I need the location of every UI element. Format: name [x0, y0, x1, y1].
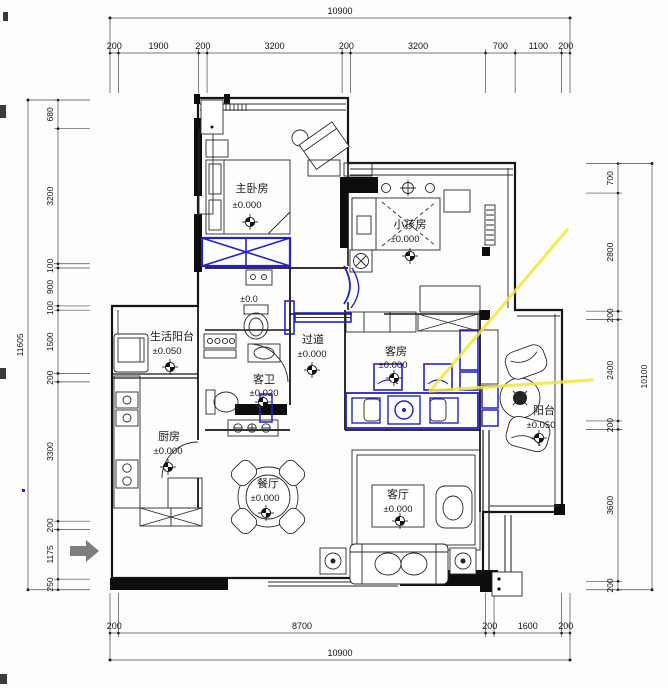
washing-machine	[114, 334, 148, 372]
floor-plan-canvas: 2001900200320020032007001100200109002008…	[0, 0, 668, 688]
dim-label: 8700	[292, 621, 312, 631]
dim-label: 1500	[45, 332, 55, 351]
room-label-hallway: 过道 ±0.000	[298, 332, 327, 378]
dim-label: 2400	[605, 361, 615, 380]
balcony-cabinet-highlight	[482, 386, 498, 426]
dim-label: 100	[45, 301, 55, 315]
dim-element	[57, 372, 60, 375]
dim-label: 200	[107, 621, 122, 631]
dim-element	[117, 52, 120, 55]
dim-element	[349, 52, 352, 55]
blue-dot-artifact	[22, 489, 25, 492]
dim-label: 11605	[15, 333, 25, 356]
dim-element	[560, 52, 563, 55]
level-marker-icon	[386, 370, 402, 386]
dim-label: 3200	[265, 41, 285, 51]
room-label-master-bath: ±0.0	[240, 294, 257, 304]
master-wardrobe-highlight	[202, 238, 290, 266]
dim-element	[57, 309, 60, 312]
dim-element	[493, 632, 496, 635]
dim-element	[197, 52, 200, 55]
floor-plan-svg: 2001900200320020032007001100200109002008…	[0, 0, 668, 688]
dim-label: 200	[195, 41, 210, 51]
svg-text:±0.000: ±0.000	[391, 234, 420, 245]
dim-element	[617, 310, 620, 313]
svg-text:±0.000: ±0.000	[384, 504, 413, 515]
dim-label: 680	[45, 107, 55, 121]
level-marker-icon	[304, 362, 320, 378]
level-marker-icon	[162, 359, 178, 375]
dim-label: 1600	[518, 621, 538, 631]
dim-element	[617, 420, 620, 423]
dim-label: 1175	[45, 545, 55, 564]
level-marker-icon	[242, 214, 258, 230]
dim-label: 200	[558, 41, 573, 51]
dim-label: 200	[45, 370, 55, 384]
dim-element	[617, 580, 620, 583]
dim-label: 200	[45, 518, 55, 532]
dim-element	[206, 52, 209, 55]
svg-text:过道: 过道	[302, 332, 324, 346]
entry-door-master	[201, 100, 223, 134]
dim-label: 10900	[327, 648, 352, 658]
dim-element	[57, 381, 60, 384]
dim-label: 200	[482, 621, 497, 631]
dim-element	[117, 632, 120, 635]
dim-element	[560, 632, 563, 635]
dim-element	[341, 52, 344, 55]
dim-label: 1100	[529, 41, 548, 51]
room-label-living-balcony: 生活阳台 ±0.050	[150, 329, 194, 375]
dim-label: 3200	[45, 186, 55, 205]
dim-element	[57, 520, 60, 523]
ac-unit	[492, 572, 522, 596]
dim-element	[617, 428, 620, 431]
dim-label: 200	[339, 41, 354, 51]
dim-label: 200	[605, 308, 615, 322]
svg-text:±0.000: ±0.000	[233, 200, 262, 211]
laundry-sink	[204, 334, 236, 358]
svg-text:±0.000: ±0.000	[154, 446, 183, 457]
dim-element	[617, 318, 620, 321]
dim-element	[514, 52, 517, 55]
svg-text:主卧房: 主卧房	[236, 182, 269, 195]
dim-element	[57, 262, 60, 265]
dim-element	[484, 52, 487, 55]
entry-arrow-icon	[70, 540, 99, 562]
dim-label: 700	[605, 171, 615, 185]
room-label-guest-room: 客房 ±0.000	[379, 344, 408, 386]
dim-element	[57, 267, 60, 270]
dim-label: 3200	[408, 41, 428, 51]
dim-label: 200	[107, 41, 122, 51]
svg-text:±0.0: ±0.0	[240, 294, 257, 304]
dim-label: 10900	[327, 6, 352, 16]
master-bath-fixtures	[244, 270, 272, 339]
master-desk-chair	[292, 122, 349, 170]
dim-label: 700	[493, 41, 508, 51]
dim-label: 3300	[45, 442, 55, 461]
svg-text:±0.000: ±0.000	[251, 493, 280, 504]
blue-highlights	[22, 238, 498, 492]
svg-text:客厅: 客厅	[387, 487, 409, 501]
svg-text:±0.000: ±0.000	[379, 360, 408, 371]
svg-text:小孩房: 小孩房	[394, 218, 427, 231]
svg-text:阳台: 阳台	[533, 403, 555, 417]
dim-element	[57, 305, 60, 308]
dim-label: 200	[558, 621, 573, 631]
room-label-kitchen: 厨房 ±0.000	[154, 430, 183, 475]
room-label-kids-room: 小孩房 ±0.000	[391, 218, 427, 264]
dim-label: 2800	[605, 242, 615, 261]
dim-element	[57, 528, 60, 531]
svg-text:±0.050: ±0.050	[527, 420, 556, 431]
room-label-master-bedroom: 主卧房 ±0.000	[233, 182, 269, 230]
dim-element	[57, 127, 60, 130]
dim-element	[617, 192, 620, 195]
dim-label: 200	[605, 418, 615, 432]
dim-element	[484, 632, 487, 635]
svg-text:±0.000: ±0.000	[298, 349, 327, 360]
svg-text:餐厅: 餐厅	[257, 476, 279, 490]
dim-label: 10100	[639, 365, 649, 389]
dim-label: 900	[45, 280, 55, 294]
dim-label: 100	[45, 258, 55, 272]
svg-text:±0.050: ±0.050	[153, 346, 182, 357]
dim-label: 200	[605, 578, 615, 592]
dim-label: 3600	[605, 496, 615, 515]
svg-text:生活阳台: 生活阳台	[150, 329, 194, 343]
dim-label: 1900	[149, 41, 169, 51]
svg-text:厨房: 厨房	[158, 430, 180, 443]
scan-artifacts	[0, 12, 8, 684]
svg-text:客卫: 客卫	[253, 372, 275, 386]
dim-element	[57, 578, 60, 581]
svg-text:客房: 客房	[385, 344, 407, 358]
